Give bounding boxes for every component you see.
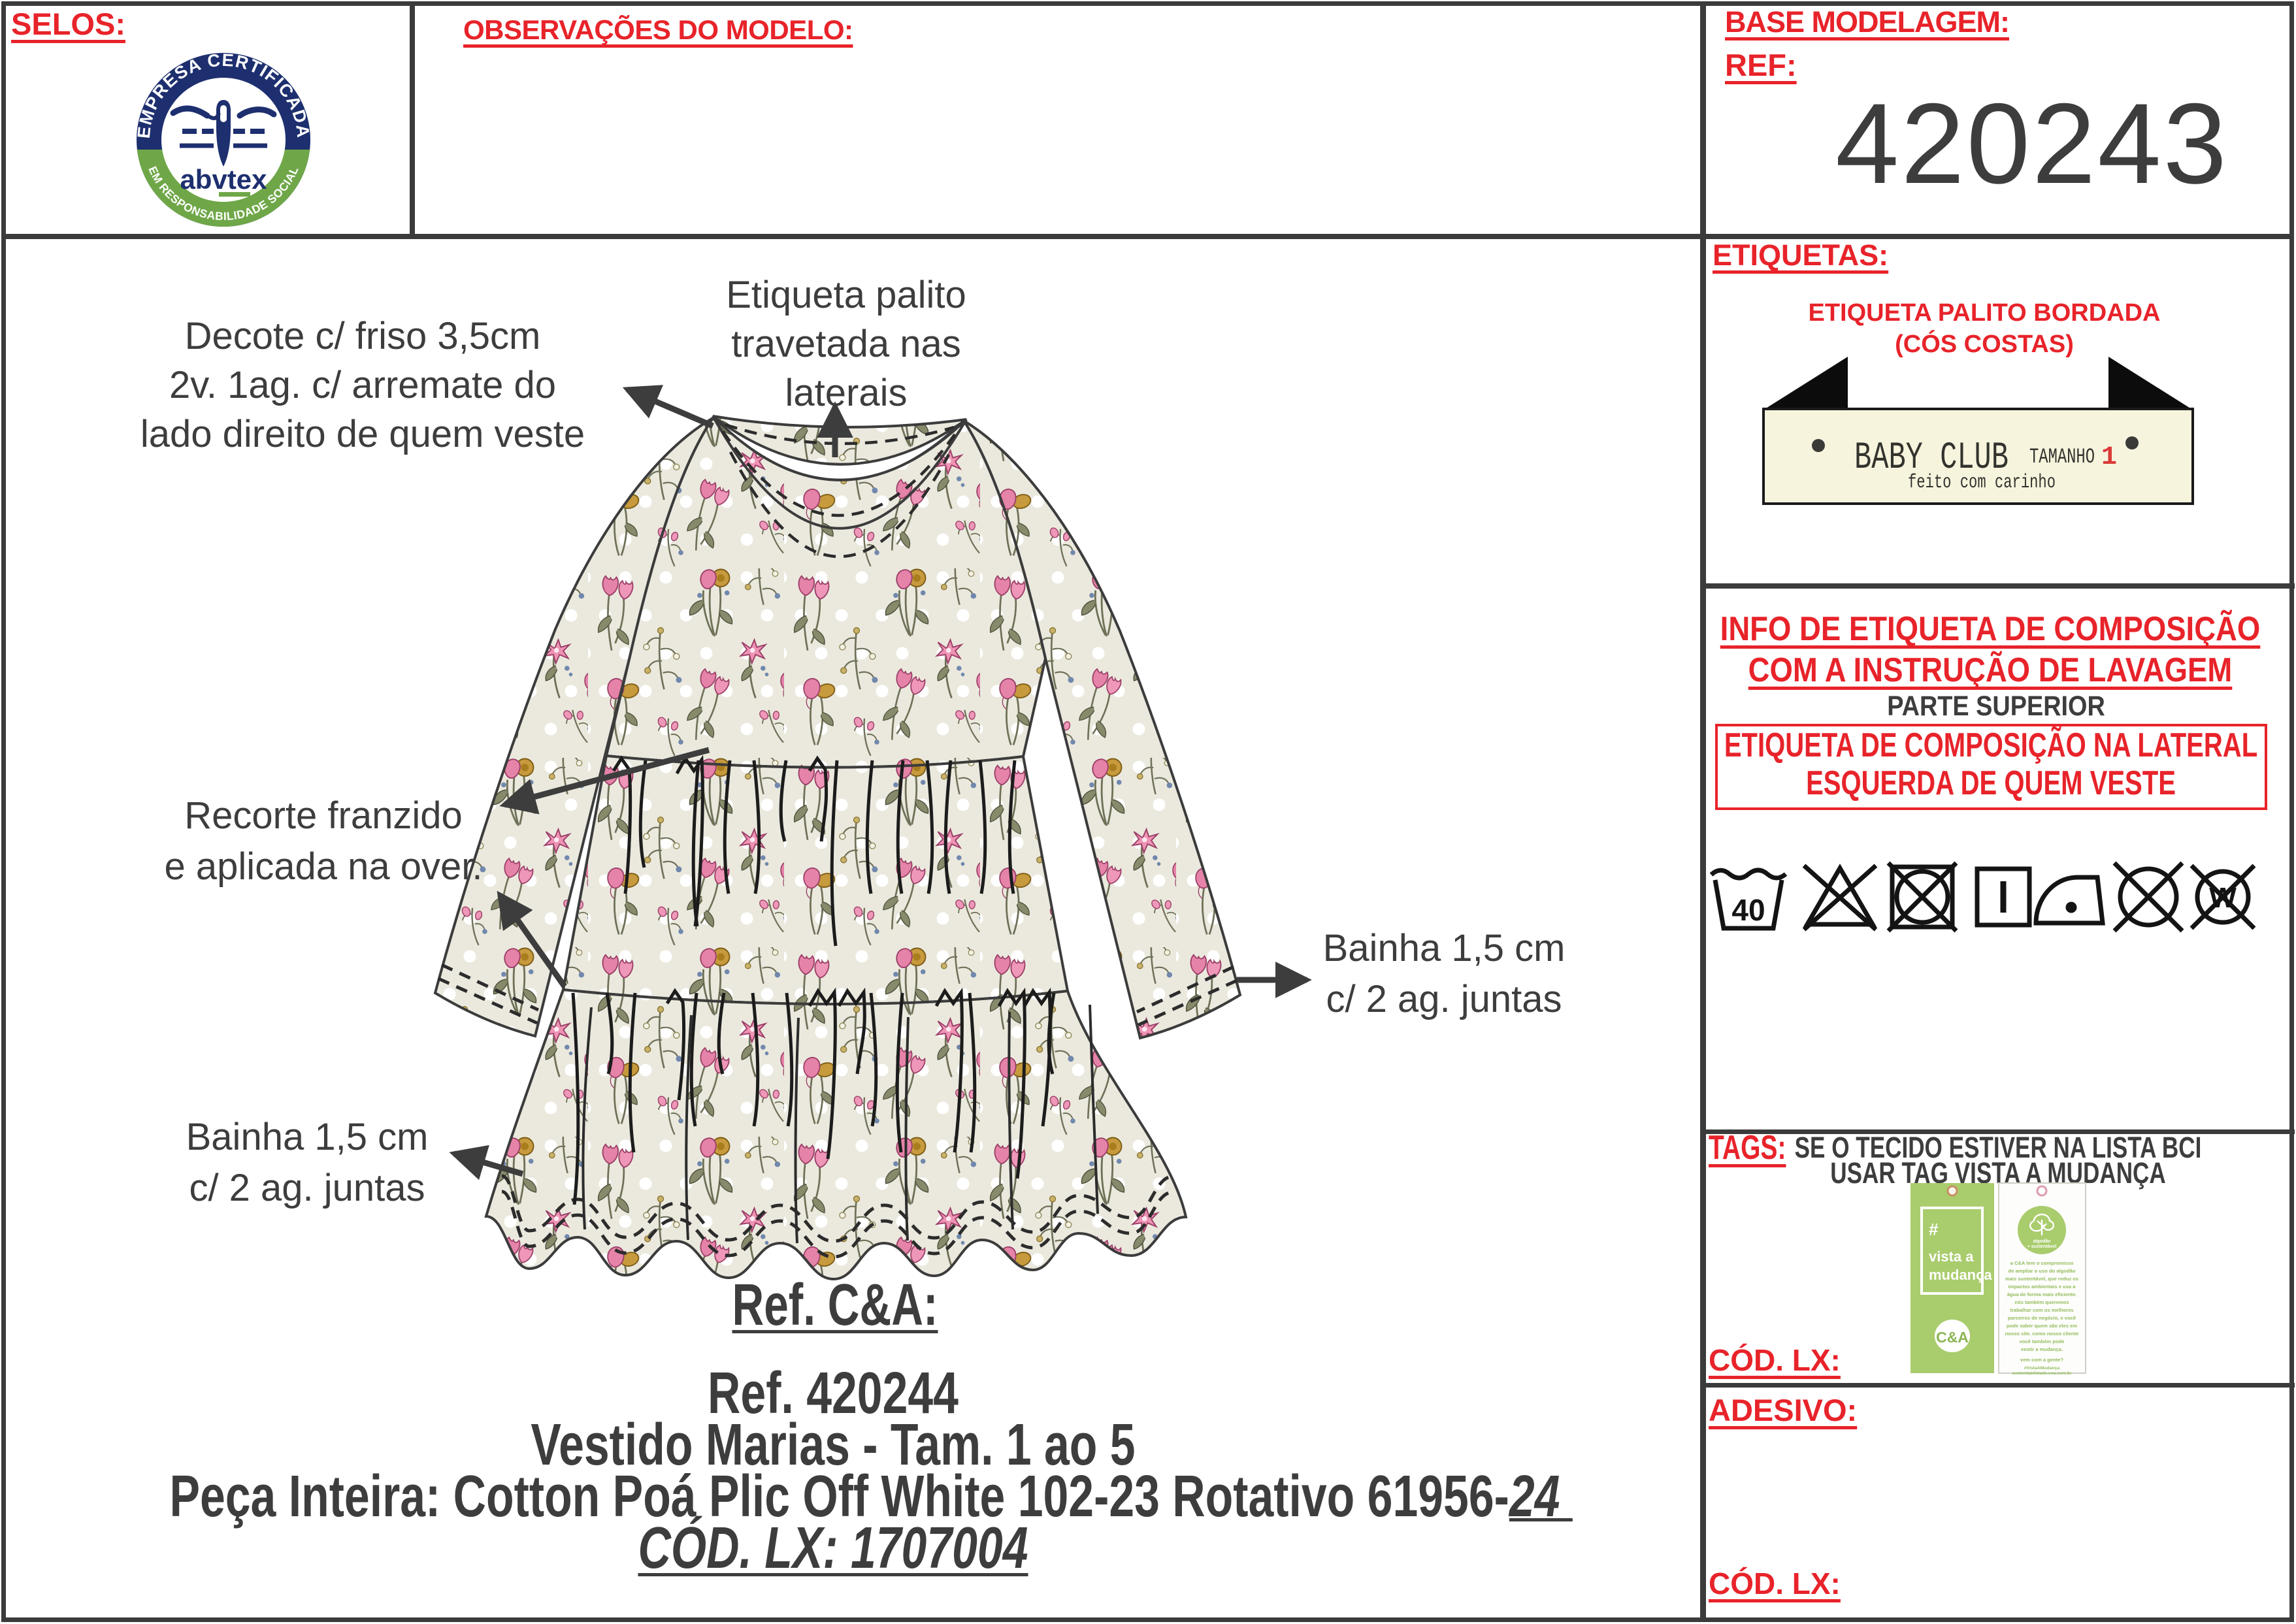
svg-text:+ sustentável: + sustentável [2027, 1244, 2057, 1249]
svg-text:C&A: C&A [1936, 1329, 1969, 1346]
svg-text:parceiros de negócio, e você: parceiros de negócio, e você [2008, 1315, 2076, 1321]
svg-text:impactos ambientais e usa a: impactos ambientais e usa a [2009, 1284, 2076, 1290]
svg-text:vestir a mudança.: vestir a mudança. [2021, 1346, 2063, 1352]
svg-text:sustentabilidade.cea.com.br: sustentabilidade.cea.com.br [2012, 1371, 2072, 1376]
svg-text:você também pode: você também pode [2020, 1339, 2065, 1344]
svg-text:mais sustentável, que reduz os: mais sustentável, que reduz os [2005, 1276, 2078, 1282]
svg-text:trabalhar com os melhores: trabalhar com os melhores [2010, 1307, 2073, 1313]
svg-text:#: # [1929, 1220, 1939, 1239]
svg-text:TAMANHO: TAMANHO [2029, 445, 2095, 469]
svg-text:água de forma mais eficiente.: água de forma mais eficiente. [2007, 1291, 2076, 1297]
svg-text:40: 40 [1731, 893, 1765, 927]
svg-text:#VistaAMudança: #VistaAMudança [2024, 1366, 2059, 1371]
svg-text:de ampliar o uso do algodão: de ampliar o uso do algodão [2009, 1268, 2076, 1274]
svg-text:mudança: mudança [1929, 1267, 1992, 1283]
svg-text:vista a: vista a [1929, 1248, 1974, 1265]
svg-text:a C&A tem o compromisso: a C&A tem o compromisso [2010, 1260, 2074, 1266]
svg-text:vem com a gente?: vem com a gente? [2020, 1357, 2064, 1363]
svg-text:nosso site. como nosso cliente: nosso site. como nosso cliente [2005, 1331, 2079, 1337]
svg-text:pode saber quem são eles em: pode saber quem são eles em [2007, 1323, 2077, 1329]
svg-text:feito com carinho: feito com carinho [1908, 472, 2056, 494]
svg-text:nós também queremos: nós também queremos [2014, 1299, 2069, 1305]
svg-text:algodão: algodão [2033, 1239, 2051, 1244]
svg-text:1: 1 [2101, 443, 2117, 472]
